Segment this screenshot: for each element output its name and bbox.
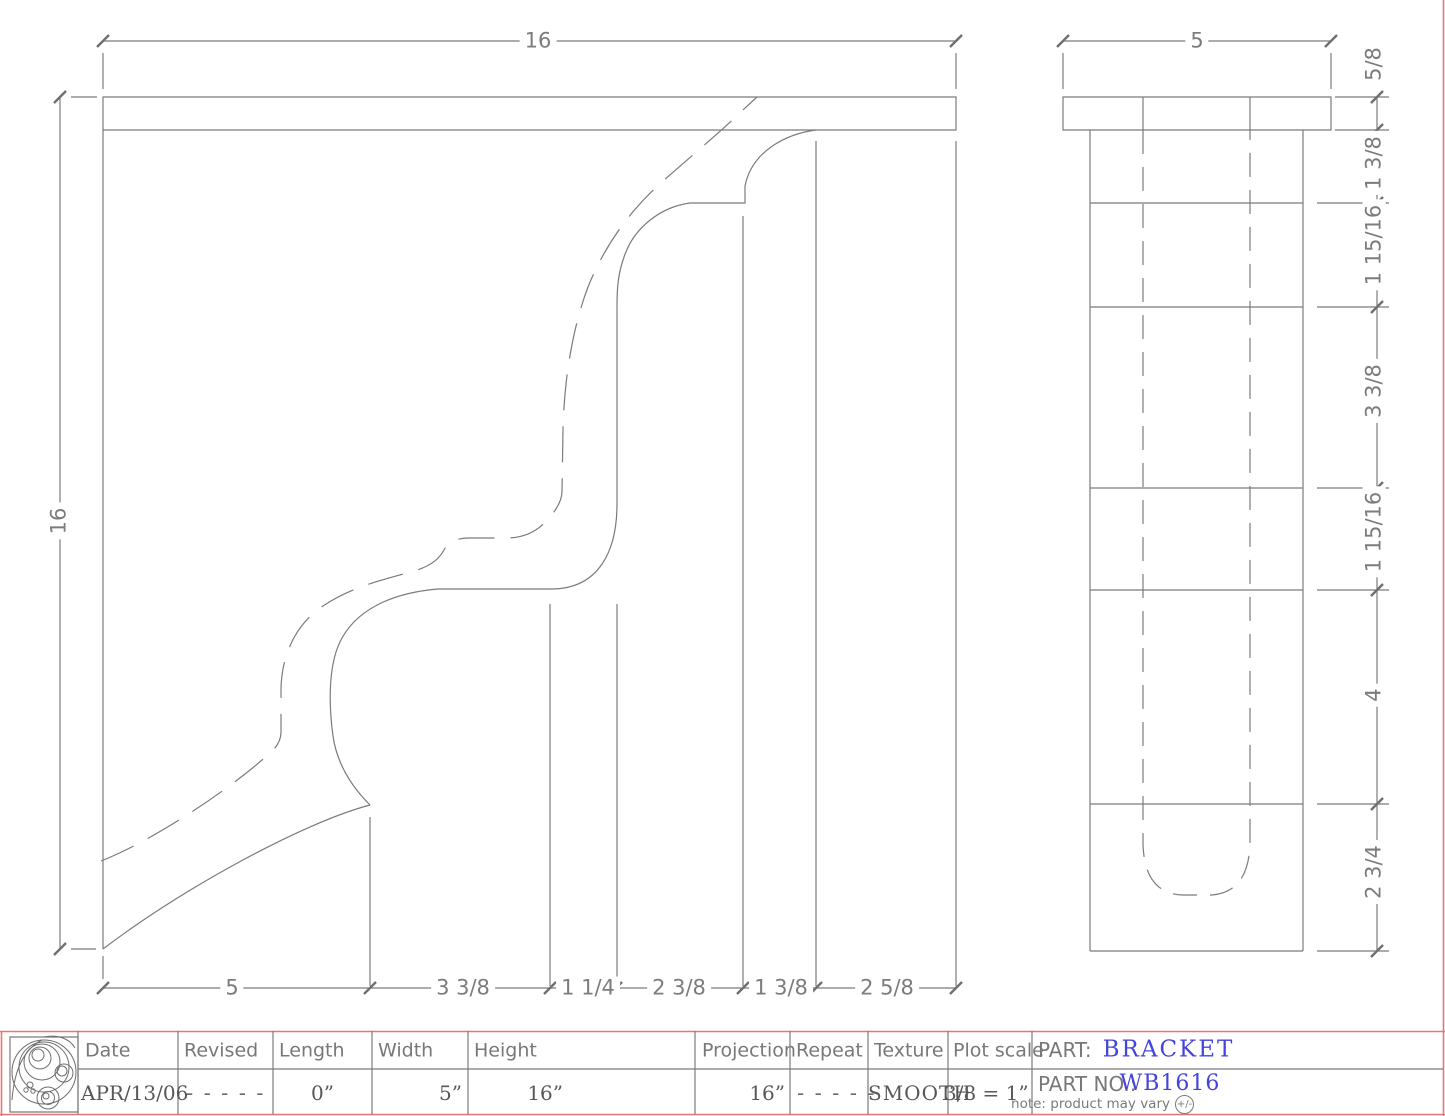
col-header-plot-scale: Plot scale: [953, 1042, 1044, 1061]
col-header-revised: Revised: [184, 1042, 258, 1061]
part-no-value: WB1616: [1105, 1073, 1235, 1095]
dim-label-chain-3: 1 15/16: [1363, 200, 1386, 291]
value-width: 5”: [372, 1083, 462, 1103]
col-header-texture: Texture: [874, 1042, 944, 1061]
dim-label-front-width-5: 5: [1185, 30, 1208, 53]
col-header-projection: Projection: [702, 1042, 796, 1061]
value-projection: 16”: [695, 1083, 785, 1103]
value-repeat: - - - - -: [797, 1083, 877, 1103]
dim-label-width-16: 16: [520, 30, 557, 53]
drawing-sheet: 16 16 5 3 3/8 1 1/4 2 3/8 1 3/8 2 5/8 5 …: [0, 0, 1445, 1116]
dim-label-chain-7: 2 3/4: [1363, 840, 1386, 904]
dim-label-chain-2: 1 3/8: [1363, 131, 1386, 195]
dimension-ticks: [54, 35, 1383, 994]
value-revised: - - - - -: [186, 1083, 266, 1103]
cad-linework: [0, 0, 1445, 1116]
dim-label-chain-5: 1 15/16: [1363, 487, 1386, 578]
dim-label-bottom-3: 1 1/4: [556, 977, 620, 1000]
dim-label-bottom-4: 2 3/8: [647, 977, 711, 1000]
col-header-width: Width: [378, 1042, 433, 1061]
dim-label-chain-1: 5/8: [1363, 42, 1386, 86]
value-height: 16”: [468, 1083, 563, 1103]
value-date: APR/13/06: [81, 1083, 188, 1103]
part-label: PART:: [1038, 1040, 1092, 1060]
col-header-length: Length: [279, 1042, 345, 1061]
plus-minus-icon: +/-: [1175, 1095, 1194, 1114]
col-header-height: Height: [474, 1042, 537, 1061]
dim-label-bottom-6: 2 5/8: [855, 977, 919, 1000]
dim-label-bottom-5: 1 3/8: [749, 977, 813, 1000]
dim-label-chain-4: 3 3/8: [1363, 359, 1386, 423]
value-texture: SMOOTH: [868, 1083, 948, 1103]
sheet-frame: [0, 0, 1445, 1116]
col-header-date: Date: [85, 1042, 130, 1061]
dim-label-bottom-1: 5: [220, 977, 243, 1000]
tolerance-note: note: product may vary: [990, 1096, 1170, 1112]
dim-label-height-16: 16: [48, 503, 71, 540]
part-value: BRACKET: [1096, 1039, 1241, 1062]
col-header-repeat: Repeat: [796, 1042, 863, 1061]
logo-scroll-icon: [12, 1036, 76, 1109]
value-length: 0”: [273, 1083, 372, 1103]
dim-label-chain-6: 4: [1363, 683, 1386, 706]
dim-label-bottom-2: 3 3/8: [431, 977, 495, 1000]
